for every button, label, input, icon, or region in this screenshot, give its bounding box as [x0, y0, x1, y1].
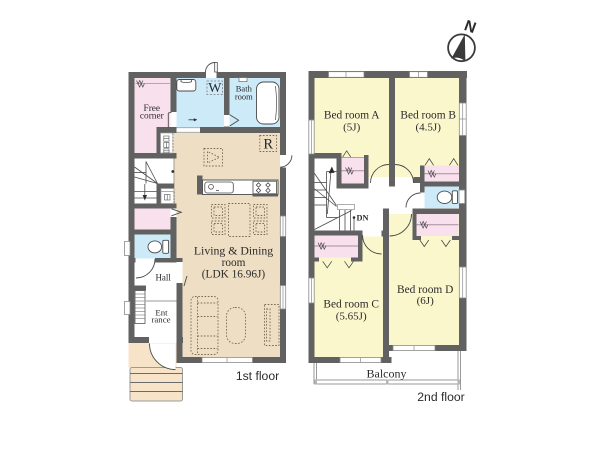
svg-text:Hall: Hall	[155, 273, 171, 283]
svg-text:2nd floor: 2nd floor	[417, 390, 464, 404]
svg-text:corner: corner	[140, 112, 165, 122]
svg-text:W: W	[208, 81, 222, 96]
svg-text:1st floor: 1st floor	[236, 369, 279, 383]
svg-text:Bed room A: Bed room A	[324, 110, 380, 122]
svg-text:Living & Dining: Living & Dining	[194, 244, 273, 258]
svg-text:(6J): (6J)	[417, 295, 434, 307]
svg-text:room: room	[222, 257, 246, 269]
svg-text:R: R	[263, 137, 273, 153]
svg-text:(5J): (5J)	[343, 122, 360, 134]
svg-text:rance: rance	[151, 314, 170, 324]
svg-text:(4.5J): (4.5J)	[416, 122, 442, 134]
svg-text:(LDK 16.96J): (LDK 16.96J)	[202, 269, 266, 281]
svg-text:Bed room B: Bed room B	[400, 110, 456, 122]
svg-text:room: room	[235, 92, 253, 102]
svg-text:DN: DN	[357, 213, 369, 222]
svg-text:(5.65J): (5.65J)	[336, 311, 367, 323]
svg-text:Bed room C: Bed room C	[323, 299, 379, 311]
svg-text:Balcony: Balcony	[367, 367, 407, 381]
